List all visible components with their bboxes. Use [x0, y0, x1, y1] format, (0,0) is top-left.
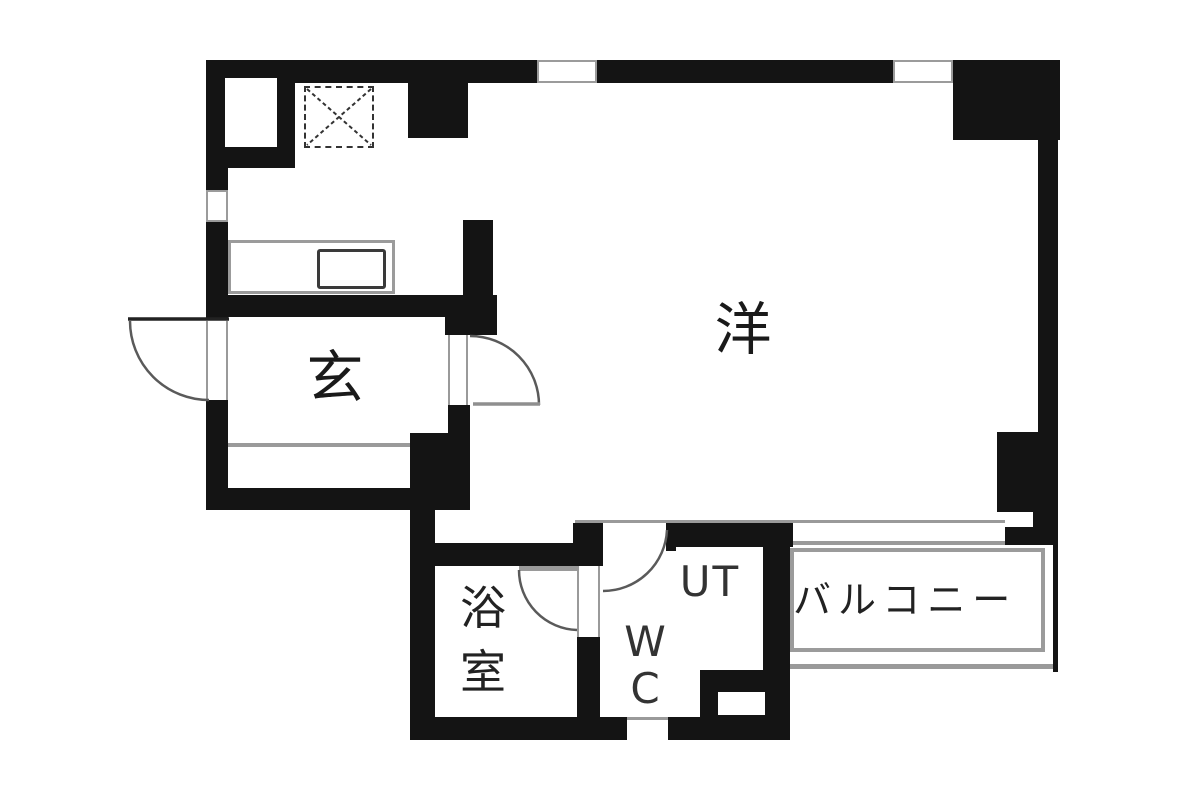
- wall-entrance-bottom: [206, 488, 415, 510]
- pillar-right: [997, 432, 1058, 512]
- bath-passage-edge-line: [598, 566, 600, 637]
- entrance-door-jamb-line: [206, 321, 208, 400]
- room-label-bathroom: 浴室: [457, 576, 509, 704]
- left-wall-window: [206, 190, 228, 222]
- wall-bottom: [410, 717, 790, 740]
- wall-bathroom-top: [435, 543, 593, 566]
- floor-plan: 洋 玄 浴室 WC UT バルコニー: [0, 0, 1200, 800]
- pillar-top: [408, 78, 468, 138]
- bathroom-door-arc: [519, 570, 577, 630]
- wall-entrance-top: [206, 295, 455, 317]
- entrance-door-jamb-line: [226, 321, 228, 400]
- pipe-space-recess: [718, 692, 765, 715]
- balcony-sliding-door-line: [793, 541, 1005, 545]
- entrance-step-line: [228, 443, 412, 447]
- wall-balcony-corner: [1005, 527, 1058, 545]
- wall-left-upper: [206, 168, 228, 190]
- living-door-arc: [470, 336, 539, 405]
- bathroom-door-leaf: [519, 566, 577, 571]
- living-door-jamb-line: [448, 335, 450, 405]
- bath-passage-edge-line: [577, 566, 579, 637]
- wall-right: [1038, 140, 1058, 432]
- wall-wc-top-left: [573, 523, 603, 566]
- meter-box-recess: [225, 78, 277, 147]
- wall-wc-top-right: [675, 523, 793, 547]
- wall-top-middle: [597, 60, 893, 83]
- room-label-western-room: 洋: [710, 298, 776, 362]
- wall-wc-balcony: [763, 547, 790, 717]
- wall-right-lower: [1033, 512, 1058, 528]
- top-window-right: [893, 60, 953, 83]
- kitchen-sink: [317, 249, 386, 289]
- room-label-entrance: 玄: [302, 346, 368, 410]
- entrance-door-arc: [130, 321, 209, 400]
- living-door-jamb-line: [466, 335, 468, 405]
- toilet-door-arc: [603, 530, 667, 591]
- wall-entrance-corner-block: [410, 433, 470, 510]
- wall-wc-door-stub: [666, 523, 676, 551]
- room-label-utility: UT: [668, 560, 752, 604]
- wall-lower-left: [410, 510, 435, 740]
- balcony-outer-edge-line: [790, 664, 1058, 669]
- wall-entrance-right-lower: [448, 405, 470, 433]
- room-label-balcony: バルコニー: [793, 580, 1045, 620]
- bottom-vent-gap: [627, 720, 668, 740]
- wall-kitchen-divider: [463, 220, 493, 320]
- top-window-left: [537, 60, 597, 83]
- room-label-toilet: WC: [621, 618, 669, 712]
- balcony-right-rail: [1053, 545, 1058, 672]
- range-space-symbol: [304, 86, 374, 148]
- wall-bath-wc-divider: [577, 637, 600, 717]
- wall-corner-top-right: [953, 60, 1060, 140]
